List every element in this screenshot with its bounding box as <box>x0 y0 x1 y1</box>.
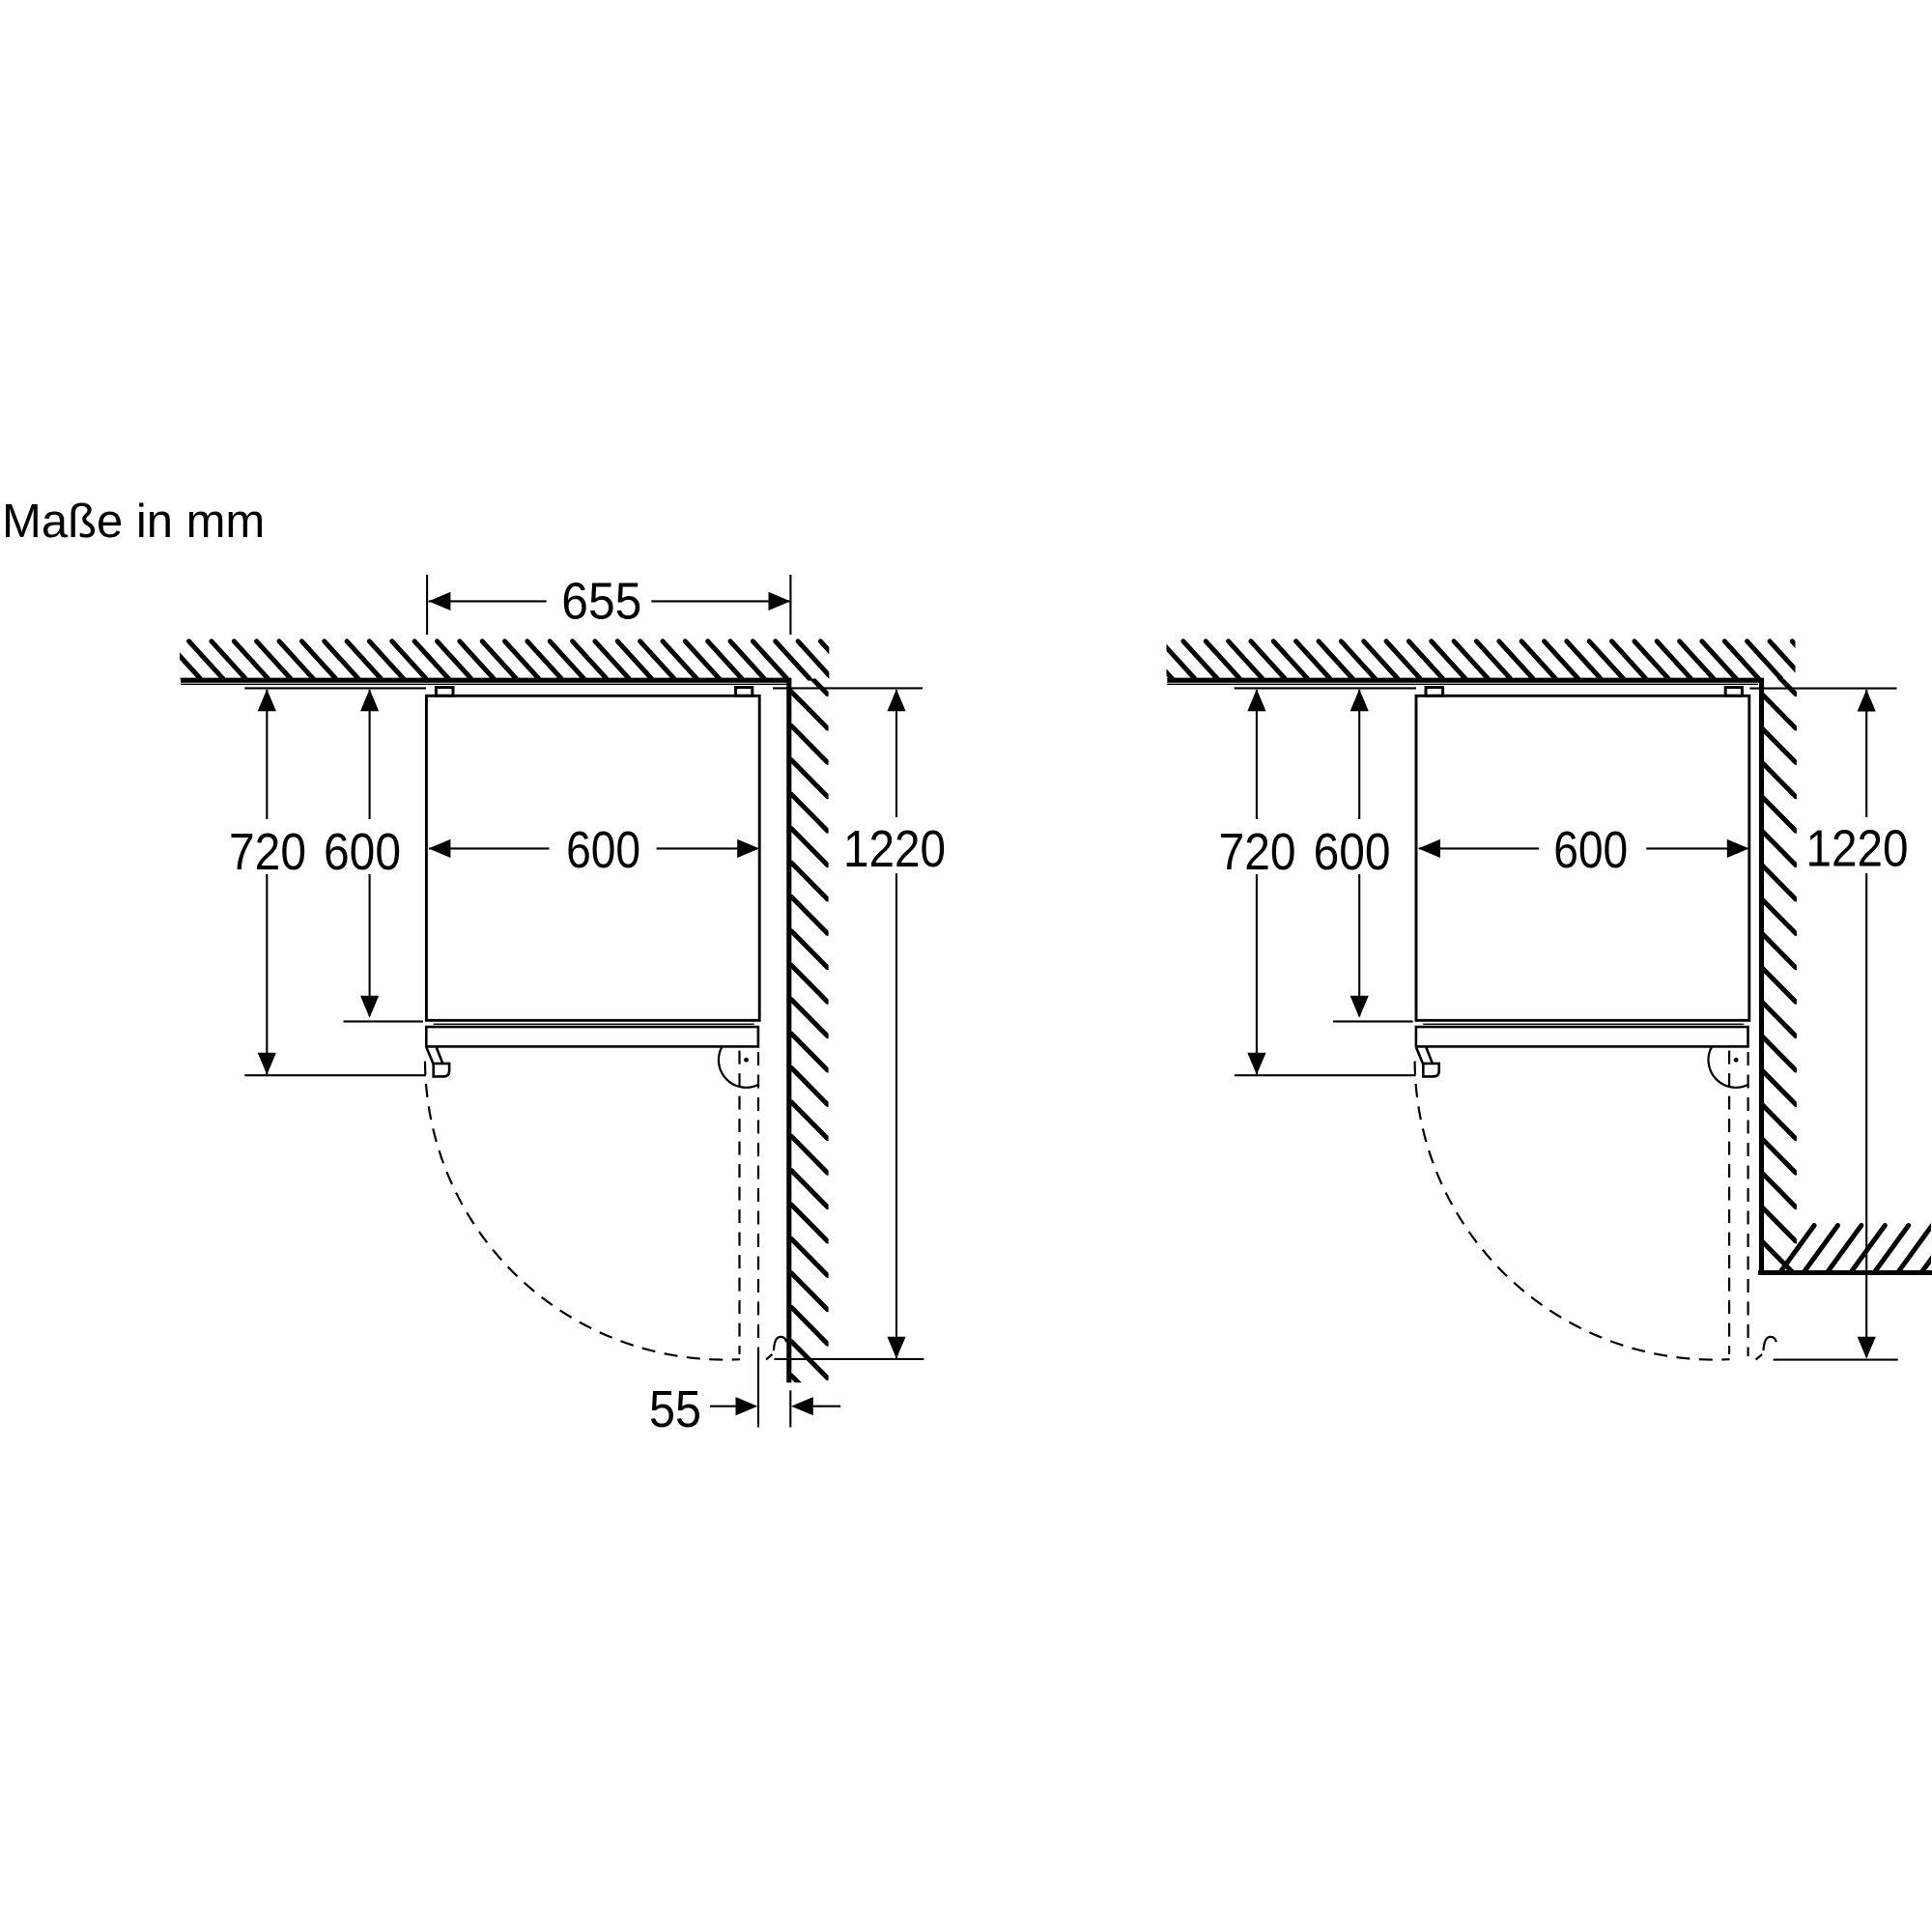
svg-text:600: 600 <box>324 823 401 881</box>
svg-text:55: 55 <box>649 1380 701 1438</box>
svg-text:1220: 1220 <box>843 820 946 878</box>
svg-text:720: 720 <box>1219 823 1296 881</box>
svg-text:720: 720 <box>229 823 306 881</box>
svg-text:1220: 1220 <box>1806 820 1909 878</box>
svg-text:Maße in mm: Maße in mm <box>2 496 265 548</box>
svg-text:655: 655 <box>561 572 641 630</box>
svg-text:600: 600 <box>1314 823 1391 881</box>
svg-text:600: 600 <box>1553 821 1628 879</box>
svg-text:600: 600 <box>566 821 640 879</box>
